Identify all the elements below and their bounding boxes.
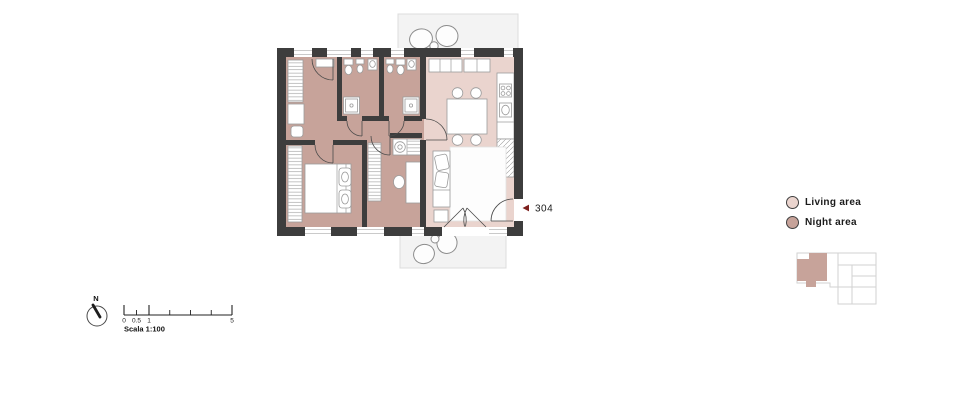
living-area-swatch: [786, 196, 799, 209]
scale-tick-05: 0.5: [132, 318, 141, 325]
balcony-top: [398, 14, 518, 52]
scale-major-ticks: [124, 305, 232, 315]
north-compass: N: [82, 292, 114, 330]
scale-minor-ticks: [137, 310, 212, 315]
floor-plan: 304: [255, 5, 575, 290]
legend-item-night: Night area: [786, 216, 861, 229]
compass-circle: [87, 306, 107, 326]
legend-label-living: Living area: [805, 197, 861, 208]
legend-label-night: Night area: [805, 217, 857, 228]
compass-needle-icon: [93, 305, 100, 317]
key-plan-unit-highlight: [797, 253, 827, 287]
entrance-arrow-icon: [523, 205, 530, 212]
unit-number-label: 304: [535, 204, 553, 215]
scale-tick-0: 0: [122, 318, 126, 325]
scale-tick-1: 1: [147, 318, 151, 325]
scale-bar: 0 0.5 1 5 Scala 1:100: [118, 298, 248, 338]
scale-caption: Scala 1:100: [124, 325, 165, 334]
legend-item-living: Living area: [786, 196, 861, 209]
entrance-marker: 304: [523, 204, 554, 215]
north-label: N: [93, 294, 98, 303]
canvas: 304 Living area Night area N 0 0.5 1 5 S…: [0, 0, 960, 415]
key-plan: [786, 241, 884, 309]
scale-tick-5: 5: [230, 318, 234, 325]
legend: Living area Night area: [786, 196, 861, 229]
night-area-swatch: [786, 216, 799, 229]
